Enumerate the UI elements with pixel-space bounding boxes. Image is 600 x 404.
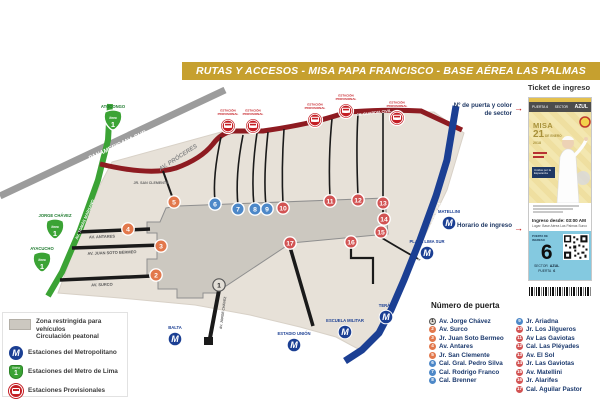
svg-text:1: 1 <box>53 229 57 238</box>
svg-text:11: 11 <box>326 198 333 205</box>
ticket-detail-line <box>533 156 544 158</box>
gate-list-item: 12Cal. Las Pléyades <box>516 343 599 352</box>
gate-list-item: 7Cal. Rodrigo Franco <box>429 368 512 377</box>
gate-marker-16: 16 <box>345 236 357 248</box>
ticket-entry-place: Lugar: Base Aérea Las Palmas Surco <box>532 224 588 228</box>
entry-ticket: PUERTA 6 SECTOR AZUL MISA 21 DE ENERO 20… <box>528 97 592 281</box>
gate-street-name: Cal. Rodrigo Franco <box>439 369 499 376</box>
gate-number-badge: 16 <box>516 377 523 384</box>
gate-marker-11: 11 <box>324 195 336 207</box>
gate-street-name: Av. Surco <box>439 326 468 333</box>
ticket-sector-value: AZUL <box>575 104 588 110</box>
svg-text:MATELLINI: MATELLINI <box>438 209 460 214</box>
gate-list-item: 15Av. Matellini <box>516 368 599 377</box>
gate-number-badge: 3 <box>429 335 436 342</box>
gate-number-badge: 17 <box>516 386 523 393</box>
gate-marker-9: 9 <box>261 203 273 215</box>
svg-text:M: M <box>171 334 179 344</box>
svg-text:2: 2 <box>154 272 158 279</box>
gate-marker-8: 8 <box>249 203 261 215</box>
ticket-motto: Unidos por la Esperanza <box>532 167 555 178</box>
gate-number-badge: 13 <box>516 352 523 359</box>
gate-number-list: Número de puerta 1Av. Jorge Chávez2Av. S… <box>429 301 600 394</box>
gate-marker-5: 5 <box>168 196 180 208</box>
gate-list-item: 1Av. Jorge Chávez <box>429 317 512 326</box>
svg-text:3: 3 <box>159 243 163 250</box>
gate-marker-12: 12 <box>352 194 364 206</box>
gate-list-heading: Número de puerta <box>431 301 600 310</box>
svg-text:AYACUCHO: AYACUCHO <box>30 246 54 251</box>
gate-number-badge: 5 <box>429 352 436 359</box>
ticket-entry-info: Ingreso desde: 03:00 AM Lugar: Base Aére… <box>529 217 591 231</box>
gate-list-item: 16Jr. Alarifes <box>516 377 599 386</box>
gate-street-name: Cal. Gral. Pedro Silva <box>439 360 503 367</box>
gate-marker-15: 15 <box>375 226 387 238</box>
gate-list-item: 13Av. El Sol <box>516 351 599 360</box>
qr-code <box>563 234 589 260</box>
svg-text:ESCUELA MILITAR: ESCUELA MILITAR <box>326 318 364 323</box>
svg-text:5: 5 <box>172 199 176 206</box>
legend-item: Estaciones Provisionales <box>9 384 123 398</box>
gate-street-name: Jr. San Clemente <box>439 352 490 359</box>
annotation-door-sector: Nº de puerta y color de sector <box>448 102 512 118</box>
gate-list-item: 10Jr. Los Jilgueros <box>516 326 599 335</box>
infographic-page: RUTAS Y ACCESOS - MISA PAPA FRANCISCO - … <box>0 0 600 404</box>
ticket-day: 21 <box>533 130 544 140</box>
svg-text:15: 15 <box>377 229 385 236</box>
gate-street-name: Av. Antares <box>439 343 473 350</box>
street-label: JR. SAN CLEMENTE <box>134 181 170 185</box>
ticket-entry-time: Ingreso desde: 03:00 AM <box>532 218 588 223</box>
gate-street-name: Av. Matellini <box>526 369 562 376</box>
svg-text:16: 16 <box>347 239 355 246</box>
gate-number-badge: 7 <box>429 369 436 376</box>
svg-text:TERÁN: TERÁN <box>379 303 393 308</box>
gate-marker-6: 6 <box>209 198 221 210</box>
svg-text:PLAZA LIMA SUR: PLAZA LIMA SUR <box>409 239 444 244</box>
gate-marker-7: 7 <box>232 203 244 215</box>
gate-number-badge: 9 <box>516 318 523 325</box>
street-label: AV. SURCO <box>91 282 113 288</box>
annotation-entry-time: Horario de ingreso <box>451 222 512 230</box>
metro-station-icon: JORGE CHÁVEZlínea1 <box>38 213 71 239</box>
gate-number-badge: 8 <box>429 377 436 384</box>
gate-street-name: Jr. Las Gaviotas <box>526 360 574 367</box>
legend-item: Zona restringida para vehículos Circulac… <box>9 318 123 341</box>
ticket-puerta: PUERTA 6 <box>532 105 548 109</box>
svg-text:1: 1 <box>217 282 221 289</box>
svg-text:M: M <box>423 248 431 258</box>
gate-number-badge: 4 <box>429 343 436 350</box>
gate-street-name: Cal. Aguilar Pastor <box>526 386 582 393</box>
gate-list-item: 2Av. Surco <box>429 326 512 335</box>
map-legend: Zona restringida para vehículos Circulac… <box>2 312 128 397</box>
ticket-body: MISA 21 DE ENERO 2018 Unidos por la Espe… <box>529 112 591 203</box>
gate-street-name: Jr. Alarifes <box>526 377 558 384</box>
gate-street-name: Av. El Sol <box>526 352 554 359</box>
gate-street-name: Jr. Los Jilgueros <box>526 326 576 333</box>
svg-text:9: 9 <box>265 206 269 213</box>
gate-list-item: 5Jr. San Clemente <box>429 351 512 360</box>
gate-street-name: Av. Jorge Chávez <box>439 318 491 325</box>
legend-label: Estaciones del Metropolitano <box>28 349 117 357</box>
gate-list-item: 8Cal. Brenner <box>429 377 512 386</box>
svg-text:M: M <box>341 327 349 337</box>
metro-station-icon: AYACUCHOlínea1 <box>30 246 54 272</box>
provisional-bus-icon <box>9 384 23 398</box>
time-arrow-icon: → <box>514 223 523 233</box>
gate-marker-13: 13 <box>377 197 389 209</box>
gate-street-name: Av Las Gaviotas <box>526 335 575 342</box>
svg-text:PROVISIONAL: PROVISIONAL <box>218 112 239 116</box>
ticket-blue-section: PUERTA DE INGRESO 6 SECTOR AZUL PUERTA 6 <box>529 231 591 280</box>
gate-street-name: Jr. Ariadna <box>526 318 558 325</box>
ticket-door-number: 6 <box>541 242 553 263</box>
svg-text:1: 1 <box>111 120 115 129</box>
ticket-barcode <box>529 287 591 296</box>
svg-text:BALTA: BALTA <box>168 325 182 330</box>
legend-item: MEstaciones del Metropolitano <box>9 346 123 360</box>
gate-list-item: 11Av Las Gaviotas <box>516 334 599 343</box>
gate-number-badge: 11 <box>516 335 523 342</box>
legend-items: Zona restringida para vehículos Circulac… <box>9 318 123 398</box>
metropolitano-station-icon: BALTAM <box>168 325 182 346</box>
svg-text:ATOCONGO: ATOCONGO <box>101 104 126 109</box>
gate-list-item: 17Cal. Aguilar Pastor <box>516 385 599 394</box>
svg-text:PROVISIONAL: PROVISIONAL <box>336 97 357 101</box>
gate-street-name: Jr. Juan Soto Bermeo <box>439 335 504 342</box>
gate-marker-2: 2 <box>150 269 162 281</box>
metro-station-icon: ATOCONGOlínea1 <box>101 104 126 130</box>
gate-marker-17: 17 <box>284 237 296 249</box>
svg-text:PROVISIONAL: PROVISIONAL <box>387 104 408 108</box>
svg-text:PROVISIONAL: PROVISIONAL <box>305 106 326 110</box>
gate-number-badge: 2 <box>429 326 436 333</box>
gate-number-badge: 15 <box>516 369 523 376</box>
gate-number-badge: 12 <box>516 343 523 350</box>
svg-text:M: M <box>382 312 390 322</box>
gate-list-column-left: 1Av. Jorge Chávez2Av. Surco3Jr. Juan Sot… <box>429 317 512 394</box>
ticket-holder-data <box>529 203 591 217</box>
street-label: AV. ANTARES <box>89 234 115 240</box>
svg-text:JORGE CHÁVEZ: JORGE CHÁVEZ <box>38 213 71 218</box>
gate-number-badge: 1 <box>429 318 436 325</box>
metro-line1-icon: línea1 <box>9 365 23 379</box>
svg-text:12: 12 <box>354 197 362 204</box>
legend-label: Zona restringida para vehículos Circulac… <box>36 318 123 341</box>
ticket-year: 2018 <box>533 141 541 145</box>
ticket-header-band: PUERTA 6 SECTOR AZUL <box>529 102 591 112</box>
svg-text:ESTADIO UNIÓN: ESTADIO UNIÓN <box>278 331 311 336</box>
gate-marker-4: 4 <box>122 223 134 235</box>
gate-number-badge: 14 <box>516 360 523 367</box>
legend-label: Estaciones del Metro de Lima <box>28 368 118 376</box>
svg-text:6: 6 <box>213 201 217 208</box>
svg-text:8: 8 <box>253 206 257 213</box>
gate-number-badge: 6 <box>429 360 436 367</box>
svg-text:1: 1 <box>40 262 44 271</box>
ticket-panel-title: Ticket de ingreso <box>518 83 600 92</box>
gate-marker-14: 14 <box>378 213 390 225</box>
gate-marker-10: 10 <box>277 202 289 214</box>
ticket-month: DE ENERO <box>545 134 562 138</box>
restricted-zone-swatch <box>9 319 31 330</box>
gate-list-item: 6Cal. Gral. Pedro Silva <box>429 360 512 369</box>
svg-text:7: 7 <box>236 206 240 213</box>
ticket-detail-line <box>533 152 547 154</box>
svg-text:PROVISIONAL: PROVISIONAL <box>243 112 264 116</box>
svg-text:4: 4 <box>126 226 130 233</box>
metropolitano-station-icon: TERÁNM <box>379 303 393 324</box>
svg-text:17: 17 <box>286 240 294 247</box>
metropolitano-icon: M <box>9 346 23 360</box>
ticket-sector-label: SECTOR <box>555 105 568 109</box>
gate-list-column-right: 9Jr. Ariadna10Jr. Los Jilgueros11Av Las … <box>516 317 599 394</box>
svg-text:14: 14 <box>380 216 388 223</box>
gate-list-item: 4Av. Antares <box>429 343 512 352</box>
metropolitano-station-icon: ESTADIO UNIÓNM <box>278 331 311 352</box>
svg-text:13: 13 <box>379 200 387 207</box>
gate-marker-3: 3 <box>155 240 167 252</box>
gate-street-name: Cal. Brenner <box>439 377 476 384</box>
gate-list-item: 9Jr. Ariadna <box>516 317 599 326</box>
door-arrow-icon: → <box>514 103 523 113</box>
legend-item: línea1Estaciones del Metro de Lima <box>9 365 123 379</box>
svg-text:M: M <box>290 340 298 350</box>
gate-list-item: 14Jr. Las Gaviotas <box>516 360 599 369</box>
legend-label: Estaciones Provisionales <box>28 387 105 395</box>
gate-street-name: Cal. Las Pléyades <box>526 343 579 350</box>
gate-number-badge: 10 <box>516 326 523 333</box>
gate-list-item: 3Jr. Juan Soto Bermeo <box>429 334 512 343</box>
svg-text:10: 10 <box>279 205 287 212</box>
gate-marker-1: 1 <box>213 279 225 291</box>
